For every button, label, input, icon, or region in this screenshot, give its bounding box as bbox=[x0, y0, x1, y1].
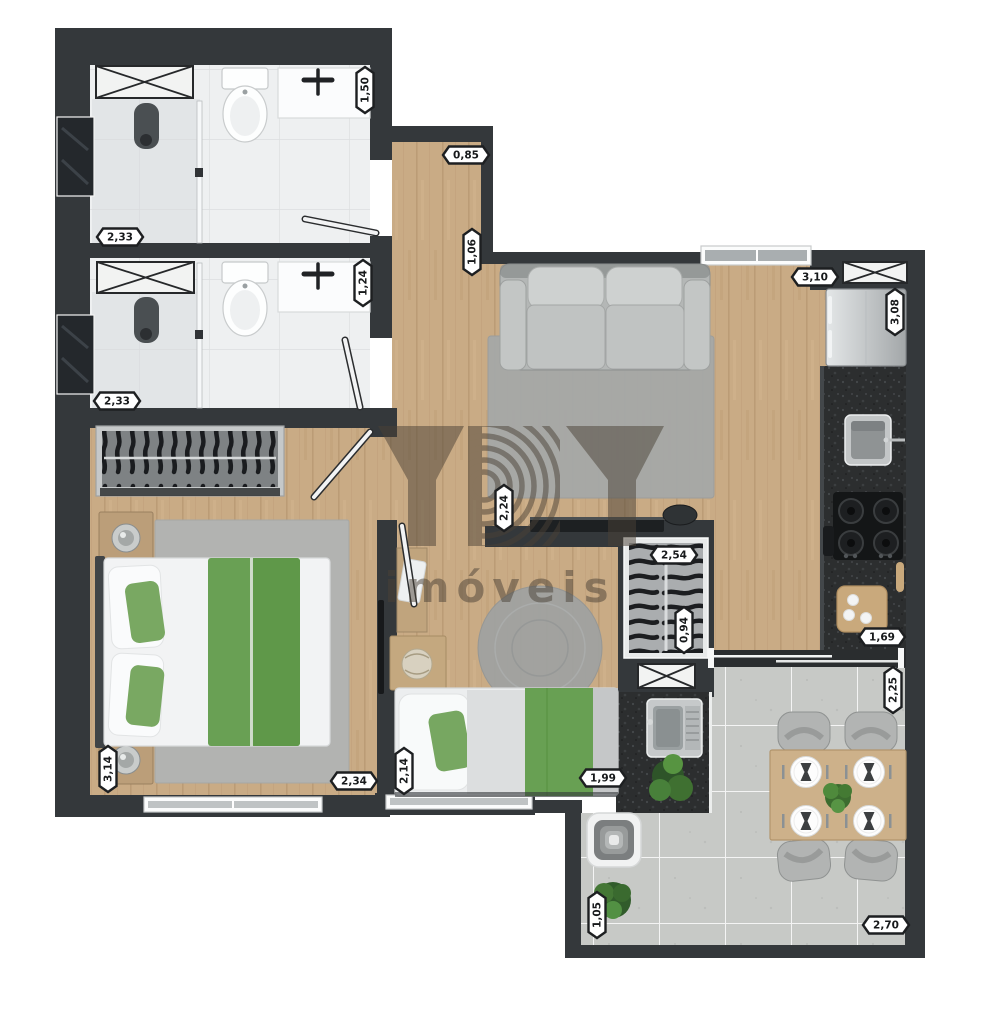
dimension-badge: 3,10 bbox=[792, 269, 838, 286]
svg-text:1,69: 1,69 bbox=[869, 632, 895, 644]
dimension-badge: 3,08 bbox=[887, 289, 904, 335]
double-bed bbox=[95, 556, 330, 748]
svg-text:2,24: 2,24 bbox=[499, 495, 511, 521]
dimension-badge: 2,33 bbox=[94, 393, 140, 410]
kitchen-towel bbox=[823, 526, 834, 556]
svg-text:2,25: 2,25 bbox=[888, 677, 900, 703]
dimension-badge: 1,50 bbox=[357, 67, 374, 113]
dimension-badge: 1,05 bbox=[589, 892, 606, 938]
toilet bbox=[222, 68, 268, 142]
dining-chair bbox=[843, 838, 898, 882]
drain-hole bbox=[140, 328, 152, 340]
living-window bbox=[701, 246, 811, 265]
dining-chair bbox=[776, 837, 832, 882]
svg-text:2,33: 2,33 bbox=[107, 232, 133, 244]
svg-text:1,50: 1,50 bbox=[360, 77, 372, 103]
dimension-badge: 2,33 bbox=[97, 229, 143, 246]
grill bbox=[587, 813, 641, 867]
dimension-badge: 2,14 bbox=[396, 748, 413, 794]
drain-hole bbox=[140, 134, 152, 146]
svg-text:1,99: 1,99 bbox=[590, 773, 616, 785]
dimension-badge: 2,70 bbox=[863, 917, 909, 934]
dimension-badge: 2,24 bbox=[496, 485, 513, 531]
dimension-badge: 0,85 bbox=[443, 147, 489, 164]
shaft-icon bbox=[96, 66, 193, 98]
svg-text:0,85: 0,85 bbox=[453, 150, 479, 162]
svg-text:2,70: 2,70 bbox=[873, 920, 899, 932]
dimension-badge: 2,25 bbox=[885, 667, 902, 713]
svg-text:3,10: 3,10 bbox=[802, 272, 828, 284]
floor-plan: imóveis 1,502,330,851,063,103,081,242,33… bbox=[0, 0, 1006, 1024]
toilet bbox=[222, 262, 268, 336]
counter-edge bbox=[709, 692, 712, 813]
svg-text:1,05: 1,05 bbox=[592, 902, 604, 928]
svg-text:2,54: 2,54 bbox=[661, 550, 687, 562]
laundry-sink bbox=[647, 699, 702, 757]
side-table bbox=[390, 636, 446, 690]
shaft-icon bbox=[97, 262, 194, 293]
shaft-icon bbox=[638, 664, 695, 688]
svg-text:0,94: 0,94 bbox=[679, 617, 691, 643]
wall-tv bbox=[378, 600, 384, 694]
dimension-badge: 1,99 bbox=[580, 770, 626, 787]
bedroom1-window bbox=[144, 797, 322, 812]
bathroom2-window bbox=[57, 315, 94, 394]
green-pillow bbox=[125, 664, 165, 727]
floor-plan-render: imóveis 1,502,330,851,063,103,081,242,33… bbox=[0, 0, 1006, 1024]
svg-text:1,24: 1,24 bbox=[358, 270, 370, 296]
kitchen bbox=[820, 289, 906, 655]
nightstand bbox=[99, 512, 153, 562]
dimension-badge: 0,94 bbox=[676, 607, 693, 653]
sofa bbox=[500, 264, 710, 370]
dimension-badge: 2,54 bbox=[651, 547, 697, 564]
glass-handle bbox=[195, 330, 203, 339]
service-area bbox=[616, 692, 712, 813]
svg-text:2,33: 2,33 bbox=[104, 396, 130, 408]
faucet-icon bbox=[647, 719, 653, 725]
glass-handle bbox=[195, 168, 203, 177]
dimension-badge: 1,06 bbox=[464, 229, 481, 275]
dimension-badge: 1,69 bbox=[859, 629, 905, 646]
counter-edge bbox=[820, 366, 824, 655]
bathroom1-window bbox=[57, 117, 94, 196]
svg-text:3,08: 3,08 bbox=[890, 299, 902, 325]
brand-subtitle: imóveis bbox=[384, 563, 615, 612]
wardrobe bbox=[96, 426, 284, 496]
dimension-badge: 1,24 bbox=[355, 260, 372, 306]
bedroom2-window bbox=[386, 795, 532, 809]
svg-text:1,06: 1,06 bbox=[467, 239, 479, 265]
decor-bowl bbox=[663, 505, 697, 525]
dimension-badge: 2,34 bbox=[331, 773, 377, 790]
svg-text:3,14: 3,14 bbox=[103, 756, 115, 782]
shaft-icon bbox=[843, 262, 907, 283]
svg-text:2,14: 2,14 bbox=[399, 758, 411, 784]
dimension-badge: 3,14 bbox=[100, 746, 117, 792]
dining-chair bbox=[778, 712, 830, 752]
svg-text:2,34: 2,34 bbox=[341, 776, 367, 788]
sliding-door bbox=[708, 648, 906, 668]
dining-chair bbox=[845, 712, 897, 752]
cooktop bbox=[833, 492, 903, 560]
